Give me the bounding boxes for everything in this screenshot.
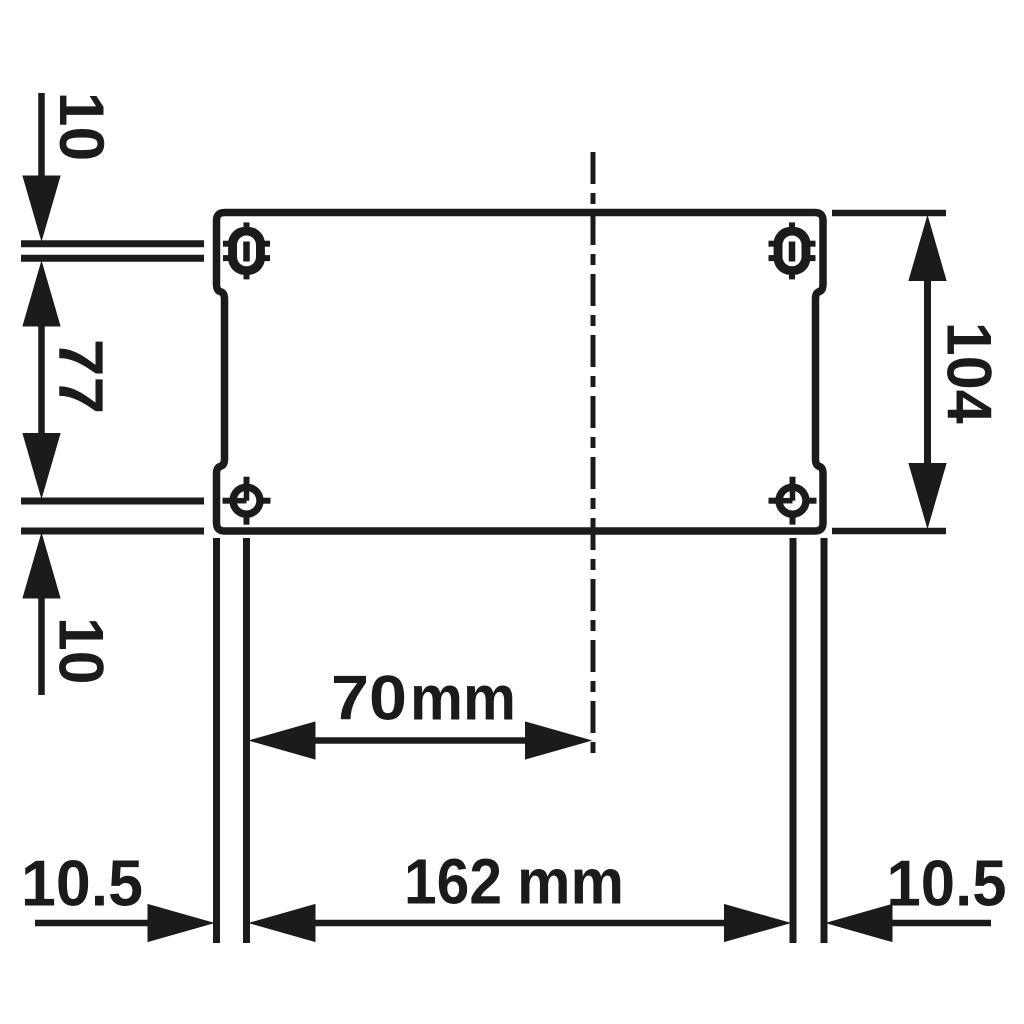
svg-text:104: 104: [934, 322, 1004, 424]
svg-text:70: 70: [331, 664, 407, 734]
svg-text:162: 162: [404, 846, 502, 918]
svg-text:mm: mm: [517, 846, 624, 918]
svg-text:10: 10: [46, 92, 116, 162]
svg-text:10.5: 10.5: [21, 847, 143, 920]
svg-text:77: 77: [45, 339, 115, 415]
svg-text:mm: mm: [410, 664, 516, 734]
svg-text:10: 10: [46, 617, 116, 685]
svg-text:10.5: 10.5: [887, 847, 1007, 920]
